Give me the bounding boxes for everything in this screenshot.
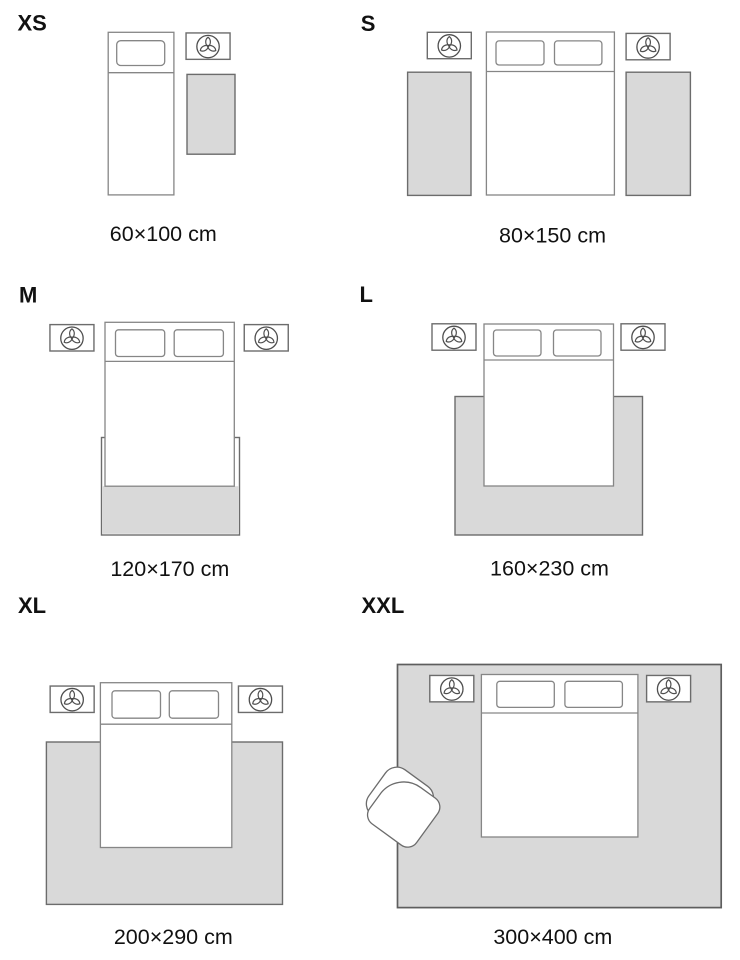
svg-text:120×170 cm: 120×170 cm: [110, 557, 229, 581]
svg-text:300×400 cm: 300×400 cm: [493, 925, 612, 949]
svg-text:XL: XL: [18, 593, 46, 618]
svg-text:XS: XS: [18, 10, 47, 35]
svg-text:160×230 cm: 160×230 cm: [490, 557, 609, 581]
svg-text:S: S: [361, 11, 376, 36]
svg-text:60×100 cm: 60×100 cm: [110, 222, 217, 246]
svg-text:80×150 cm: 80×150 cm: [499, 223, 606, 247]
svg-text:L: L: [360, 282, 373, 307]
svg-text:200×290 cm: 200×290 cm: [114, 925, 233, 949]
svg-text:XXL: XXL: [362, 593, 405, 618]
svg-text:M: M: [19, 282, 37, 307]
